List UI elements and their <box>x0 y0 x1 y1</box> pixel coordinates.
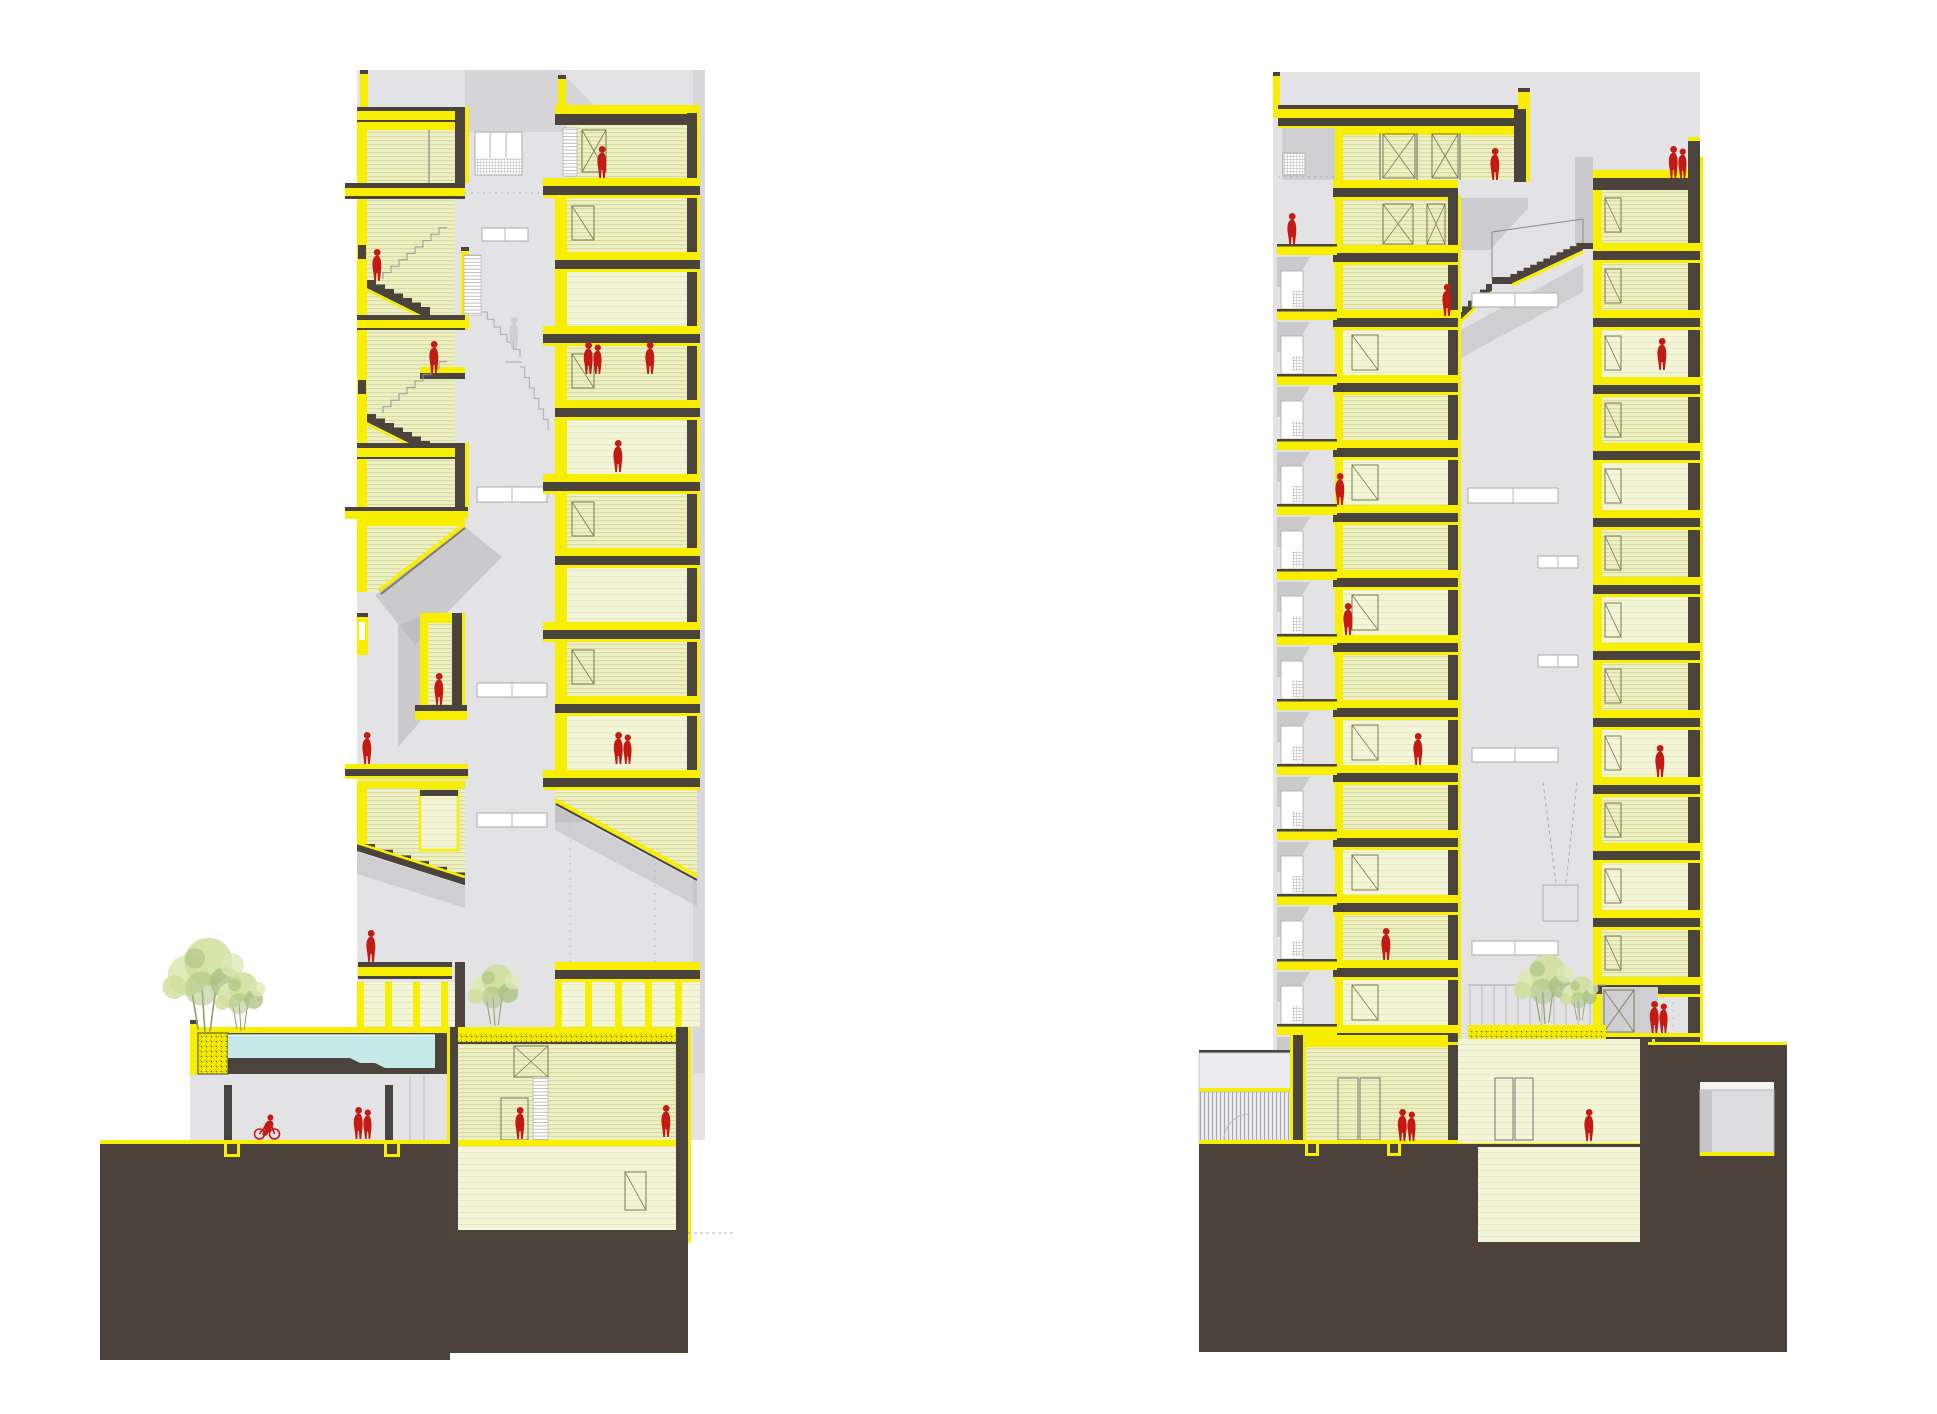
lobby-left-wall <box>1293 1035 1303 1143</box>
tower-right-wall <box>1448 195 1458 1143</box>
floor-slab-edge <box>543 195 700 198</box>
floor-slab-edge <box>1333 912 1458 915</box>
walkway-lip <box>1277 896 1337 905</box>
facade-window-vent <box>1292 876 1303 892</box>
floor-slab-finish <box>1333 1025 1458 1033</box>
setback-window <box>1283 153 1305 175</box>
floor-slab <box>1593 851 1700 860</box>
hanging-room-floor-finish <box>415 711 467 720</box>
tower-right-wall <box>455 962 465 1027</box>
facade-window-vent <box>1292 941 1303 957</box>
floor-slab-edge <box>555 565 700 568</box>
floor-slab-edge <box>555 269 700 272</box>
lobby-ceiling-band <box>1306 1035 1448 1047</box>
floor-slab-edge <box>1593 594 1700 597</box>
hanging-room-left-wall <box>420 613 428 720</box>
mullion <box>645 982 652 1027</box>
void-wall-cap <box>461 247 469 251</box>
buried-roof-hatch <box>458 1033 676 1042</box>
tower-right-wall <box>455 107 465 183</box>
stair-landing <box>1492 277 1512 284</box>
parking-column <box>224 1085 232 1140</box>
upper-terrain-surface <box>1648 1042 1787 1045</box>
hall-fill <box>1458 1039 1640 1143</box>
walkway-lip <box>1277 311 1337 320</box>
mullion <box>675 982 682 1027</box>
walkway-lip <box>1277 766 1337 775</box>
walkway-lip <box>1277 701 1337 710</box>
ceiling-band <box>367 122 455 130</box>
parapet-cap <box>360 70 368 74</box>
landing-finish <box>420 367 465 373</box>
floor-slab-edge <box>1333 392 1458 395</box>
floor-slab-finish <box>1593 243 1700 251</box>
winter-garden <box>357 982 465 1027</box>
basement-fill-over <box>1478 1147 1640 1242</box>
floor-slab-edge <box>1593 394 1700 397</box>
floor-slab-edge <box>1593 794 1700 797</box>
facade-window-vent <box>1292 681 1303 697</box>
facade-window-vent <box>1292 356 1303 372</box>
floor-slab <box>1333 968 1458 977</box>
floor-slab-edge <box>1333 327 1458 330</box>
glazing-mullion <box>1335 395 1343 440</box>
room-fill <box>1343 200 1448 245</box>
floor-slab-finish <box>1333 830 1458 838</box>
wall-edge <box>1458 195 1461 1143</box>
room-fill <box>1343 525 1448 570</box>
floor-slab-edge <box>1593 927 1700 930</box>
parapet-cap <box>558 75 566 79</box>
slab-edge <box>345 196 465 199</box>
floor-slab-finish <box>543 770 700 778</box>
floor-slab-finish <box>543 178 700 186</box>
facade-window-vent <box>1292 291 1303 307</box>
room-fill <box>1343 330 1448 375</box>
floor-slab <box>1593 718 1700 727</box>
floor-slab <box>1333 838 1458 847</box>
floor-slab-edge <box>1593 260 1700 263</box>
room-fill <box>367 122 455 183</box>
floor-slab-finish <box>1593 577 1700 585</box>
roof-line <box>357 107 465 111</box>
floor-slab-edge <box>1333 457 1458 460</box>
parking-column <box>385 1085 393 1140</box>
glazing-mullion <box>1335 525 1343 570</box>
slab <box>345 507 468 511</box>
bike-store-screen <box>1199 1092 1293 1143</box>
floor-slab <box>1333 578 1458 587</box>
floor-slab-finish <box>1593 377 1700 385</box>
floor-slab <box>543 334 700 343</box>
slab-finish <box>357 320 465 328</box>
floor-slab-edge <box>1333 262 1458 265</box>
floor-slab <box>1593 918 1700 927</box>
walkway-lip-cap <box>1277 894 1337 897</box>
floor-slab <box>1333 773 1458 782</box>
void-stair-rungs <box>464 255 481 315</box>
sliver-window <box>359 622 365 640</box>
parapet-cap <box>1273 72 1280 76</box>
floor-slab-finish <box>1333 570 1458 578</box>
wall-edge <box>1290 1035 1293 1143</box>
slab-edge <box>345 776 468 779</box>
terrace-slab <box>358 967 452 976</box>
floor-slab-finish <box>1593 510 1700 518</box>
floor-slab-finish <box>1593 443 1700 451</box>
ground-mass <box>100 1144 450 1360</box>
floor-slab-edge <box>1593 327 1700 330</box>
buried-right-wall <box>676 1027 688 1243</box>
floor-slab <box>543 186 700 195</box>
slab-finish <box>345 511 468 519</box>
glazing-mullion <box>1335 128 1343 180</box>
stack-left-wall <box>555 494 567 548</box>
glazing-mullion <box>1335 720 1343 765</box>
floor-slab-finish <box>1593 710 1700 718</box>
mullion <box>357 982 364 1027</box>
roof-finish <box>357 111 465 120</box>
glazing-mullion <box>1335 265 1343 310</box>
parapet <box>360 70 368 110</box>
walkway-lip-cap <box>1277 699 1337 702</box>
floor-slab-finish <box>1593 310 1700 318</box>
floor-slab-finish <box>1333 440 1458 448</box>
stack-left-wall <box>555 568 567 622</box>
floor-slab-edge <box>555 979 700 982</box>
buried-roof-edge <box>458 1042 676 1044</box>
facade-window-vent <box>1292 421 1303 437</box>
slab-finish <box>1593 1033 1700 1037</box>
landing-slab <box>420 373 465 379</box>
floor-slab-edge <box>1333 587 1458 590</box>
floor-slab-finish <box>1333 245 1458 253</box>
sections-drawing <box>0 0 1937 1414</box>
floor-slab-edge <box>1333 197 1458 200</box>
basement-fill <box>458 1146 676 1230</box>
street-surface <box>100 1140 450 1144</box>
tower-right-edge <box>465 443 469 507</box>
right-building-section <box>1199 72 1787 1352</box>
mullion <box>385 982 392 1027</box>
walkway-lip-cap <box>1277 374 1337 377</box>
glazing-mullion <box>1335 850 1343 895</box>
facade-window-vent <box>1292 486 1303 502</box>
floor-slab <box>555 260 700 269</box>
floor-slab-finish <box>1593 643 1700 651</box>
floor-slab-finish <box>1593 910 1700 918</box>
floor-slab <box>1333 188 1458 197</box>
foundation-notch-core <box>1308 1144 1316 1153</box>
floor-slab <box>1593 385 1700 394</box>
floor-slab-finish <box>1333 375 1458 383</box>
floor-slab <box>1593 451 1700 460</box>
facade-window-vent <box>1292 551 1303 567</box>
floor-slab <box>1333 448 1458 457</box>
floor-slab-edge <box>1593 660 1700 663</box>
walkway-lip-cap <box>1277 829 1337 832</box>
floor-slab-edge <box>555 713 700 716</box>
stair-rungs <box>563 128 577 176</box>
stack-left-wall <box>555 272 567 326</box>
floor-slab-finish <box>1333 895 1458 903</box>
glazing-mullion <box>1335 590 1343 635</box>
room-fill <box>1602 797 1688 843</box>
annex-yellow-band <box>1199 1088 1293 1092</box>
floor-slab <box>1593 251 1700 260</box>
left-buried-levels <box>447 1027 691 1243</box>
stack-right-wall-edge <box>697 113 700 778</box>
buried-roof-finish <box>458 1027 676 1033</box>
wall-edge <box>1700 157 1703 1043</box>
terrace-slab-cap <box>358 962 452 967</box>
floor-slab-edge <box>1333 977 1458 980</box>
mullion <box>413 982 420 1027</box>
room-fill <box>1343 850 1448 895</box>
floor-slab <box>555 556 700 565</box>
walkway-lip-cap <box>1277 1024 1337 1027</box>
tower-right-edge <box>465 107 469 183</box>
walkway-lip <box>1277 636 1337 645</box>
podium-parapet <box>190 1020 198 1075</box>
wall-edge <box>1303 1035 1306 1143</box>
ceiling-band <box>357 781 465 788</box>
ground-mass-under-building <box>450 1243 688 1353</box>
roof-finish <box>555 105 700 114</box>
walkway-lip-cap <box>1277 244 1337 247</box>
floor-slab-finish <box>555 548 700 556</box>
slab-finish <box>345 764 468 769</box>
room-fill <box>1343 980 1448 1025</box>
floor-slab-finish <box>1333 700 1458 708</box>
basement-floor-slab <box>450 1230 688 1243</box>
floor-slab <box>1333 708 1458 717</box>
floor-slab-edge <box>543 639 700 642</box>
floor-slab <box>543 778 700 787</box>
slab-edge <box>357 328 465 330</box>
walkway-lip-cap <box>1277 959 1337 962</box>
room-fill <box>1602 397 1688 443</box>
room-fill <box>1343 720 1448 765</box>
slab-finish <box>345 188 465 196</box>
tower-left-wall <box>357 781 367 844</box>
roof-slab <box>1593 178 1700 190</box>
floor-band <box>458 1140 676 1146</box>
floor-slab <box>543 630 700 639</box>
room-fill <box>567 568 687 622</box>
glazing-mullion <box>1335 655 1343 700</box>
glazing-mullion <box>1335 915 1343 960</box>
floor-slab-edge <box>1333 522 1458 525</box>
floor-slab-edge <box>1593 527 1700 530</box>
roof-edge <box>1278 126 1530 128</box>
walkway-lip <box>1277 246 1337 255</box>
facade-window-vent <box>1292 746 1303 762</box>
floor-slab <box>555 704 700 713</box>
floor-slab-edge <box>1593 727 1700 730</box>
roof-line <box>1278 105 1530 109</box>
glazing-mullion <box>1335 330 1343 375</box>
roof-slab <box>555 114 700 125</box>
inner-box-cap <box>420 790 458 796</box>
room-fill <box>367 459 455 507</box>
walkway-lip <box>1277 376 1337 385</box>
floor-slab <box>1333 513 1458 522</box>
walkway-lip-cap <box>1277 504 1337 507</box>
tower-right-wall <box>455 443 465 507</box>
floor-slab-finish <box>555 400 700 408</box>
room-fill <box>1602 597 1688 643</box>
room-fill <box>567 125 687 178</box>
floor-slab <box>1333 253 1458 262</box>
mullion <box>555 982 562 1027</box>
slab-edge <box>357 457 465 459</box>
floor-slab <box>1593 318 1700 327</box>
floor-slab-edge <box>543 787 700 790</box>
terrace-finish <box>1468 1025 1606 1031</box>
facade-window-vent <box>1292 1006 1303 1022</box>
tower-left-wall <box>357 519 367 592</box>
left-building-section <box>100 70 733 1360</box>
stack-left-wall <box>555 198 567 252</box>
room-fill <box>1343 395 1448 440</box>
architectural-sections-page <box>0 0 1937 1414</box>
floor-slab-edge <box>555 417 700 420</box>
floor-slab <box>1333 318 1458 327</box>
foundation-notch-core <box>387 1144 397 1154</box>
ceiling-band <box>1343 128 1518 135</box>
tower-left-wall <box>357 459 367 507</box>
mullion <box>585 982 592 1027</box>
facade-window-vent <box>1292 616 1303 632</box>
floor-slab <box>1333 383 1458 392</box>
floor-slab-finish <box>1593 977 1700 985</box>
parapet-cap <box>1688 137 1700 141</box>
floor-slab-edge <box>543 343 700 346</box>
floor-slab-edge <box>1593 460 1700 463</box>
street-surface <box>1199 1140 1458 1144</box>
walkway-lip-cap <box>1277 634 1337 637</box>
walkway-lip <box>1277 1026 1337 1035</box>
floor-slab <box>1593 651 1700 660</box>
floor-slab <box>1333 903 1458 912</box>
walkway-lip-cap <box>1277 764 1337 767</box>
floor-slab-finish <box>1333 310 1458 318</box>
room-fill <box>1343 785 1448 830</box>
floor-slab-finish <box>543 622 700 630</box>
stack-left-wall <box>555 716 567 770</box>
parapet <box>558 75 566 107</box>
floor-slab-edge <box>1333 782 1458 785</box>
room-fill <box>1343 915 1448 960</box>
hanging-room-right-edge <box>462 613 465 720</box>
lightwell-top <box>1700 1082 1774 1090</box>
floor-slab-edge <box>543 491 700 494</box>
room-fill <box>567 272 687 326</box>
facade-window-slot <box>358 380 366 394</box>
slab <box>357 443 465 448</box>
annex-face <box>1199 1053 1293 1092</box>
slab <box>357 315 465 320</box>
buried-left-wall <box>450 1027 458 1243</box>
floor-slab-edge <box>1333 717 1458 720</box>
floor-slab <box>543 482 700 491</box>
floor-slab-finish <box>1333 765 1458 773</box>
parapet <box>1688 141 1700 157</box>
floor-slab-edge <box>1333 847 1458 850</box>
tall-room-fill <box>458 1044 676 1140</box>
floor-slab-finish <box>543 326 700 334</box>
room-fill <box>1343 590 1448 635</box>
wall-edge <box>688 1027 691 1243</box>
floor-slab-finish <box>555 696 700 704</box>
floor-slab <box>1593 518 1700 527</box>
ladder-rungs <box>533 1077 548 1140</box>
floor-slab-edge <box>1333 652 1458 655</box>
lightwell-threshold <box>1700 1152 1774 1156</box>
slab <box>345 183 465 188</box>
roof-finish <box>1278 109 1530 118</box>
walkway-lip <box>1277 571 1337 580</box>
lightwell-shade <box>1700 1090 1712 1155</box>
podium-deck-finish <box>190 1027 455 1033</box>
tower-left-wall <box>357 122 367 183</box>
slab-finish <box>357 448 465 457</box>
floor-slab <box>1333 643 1458 652</box>
mullion <box>615 982 622 1027</box>
room-fill <box>1343 460 1448 505</box>
walkway-lip <box>1277 831 1337 840</box>
wall-cap <box>357 613 368 617</box>
slab <box>345 769 468 776</box>
walkway-lip <box>1277 961 1337 970</box>
terrace-hatch <box>1468 1031 1606 1039</box>
glazing-mullion <box>1335 785 1343 830</box>
tower-right-wall-top <box>1514 109 1526 182</box>
walkway-lip <box>1277 441 1337 450</box>
floor-slab-finish <box>1333 635 1458 643</box>
stack-left-wall <box>555 420 567 474</box>
floor-slab-finish <box>1333 180 1458 188</box>
glazing-mullion <box>1335 980 1343 1025</box>
facade-window-slot <box>358 245 366 259</box>
glazing-mullion <box>1335 200 1343 245</box>
floor-slab-finish <box>1333 505 1458 513</box>
floor-slab-finish <box>1593 843 1700 851</box>
roof-edge <box>357 120 465 122</box>
walkway-lip-cap <box>1277 309 1337 312</box>
stack-left-wall <box>555 642 567 696</box>
hanging-room-floor <box>415 705 467 711</box>
floor-slab <box>555 408 700 417</box>
podium-hatch-block <box>198 1033 228 1074</box>
lobby-fill <box>1306 1047 1448 1143</box>
floor-slab <box>1593 785 1700 794</box>
floor-slab-finish <box>555 962 700 970</box>
ceiling-band <box>357 519 465 526</box>
walkway-lip-cap <box>1277 569 1337 572</box>
void-window-mesh <box>476 158 521 174</box>
room-fill <box>1343 655 1448 700</box>
floor-slab-finish <box>543 474 700 482</box>
mullion <box>441 982 448 1027</box>
roof-parapet-cap <box>1518 88 1530 92</box>
roof-slab <box>1278 118 1530 126</box>
terrace-slab-edge <box>358 976 452 979</box>
walkway-lip <box>1277 506 1337 515</box>
foundation-notch-core <box>227 1144 237 1154</box>
hanging-room-right-wall <box>452 613 462 720</box>
